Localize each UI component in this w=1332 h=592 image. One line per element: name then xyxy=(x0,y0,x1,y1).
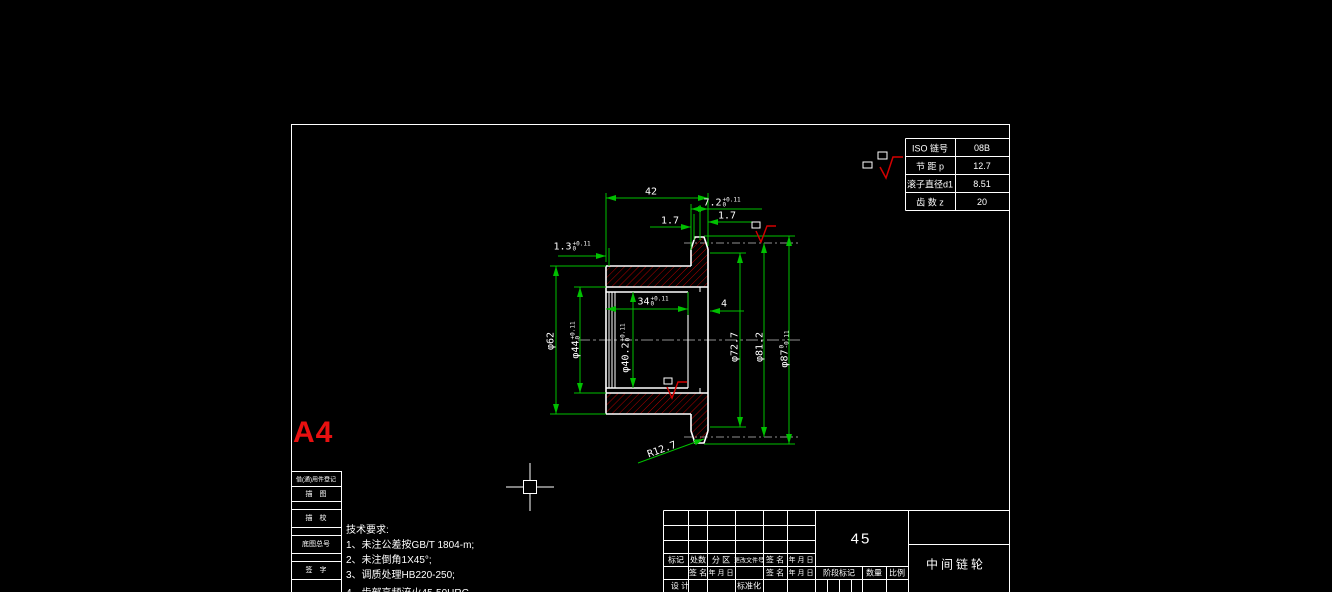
edge-field-trace: 描 图 xyxy=(306,489,327,499)
dim-text-dia62: φ62 xyxy=(546,332,557,350)
tb-sign3: 签 名 xyxy=(766,568,784,579)
tb-doc-no: 更改文件号 xyxy=(734,556,764,565)
edge-field-borrow: 借(通)用件登记 xyxy=(296,475,336,484)
dim-text-42: 42 xyxy=(645,187,657,198)
tech-req-item: 3、调质处理HB220-250; xyxy=(346,566,455,581)
tech-req-item: 4、齿部高频淬火45-50HRC xyxy=(346,584,469,592)
tech-req-item: 2、未注倒角1X45°; xyxy=(346,551,432,566)
param-value-teeth: 20 xyxy=(977,197,987,207)
param-label-iso: ISO 链号 xyxy=(912,142,948,155)
tech-req-item: 1、未注公差按GB/T 1804-m; xyxy=(346,536,474,551)
tb-design: 设 计 xyxy=(671,581,689,592)
tb-sign2: 签 名 xyxy=(689,568,707,579)
dim-text-dia72-7: φ72.7 xyxy=(730,332,741,362)
param-value-roller: 8.51 xyxy=(973,179,991,189)
param-label-pitch: 节 距 p xyxy=(916,160,944,173)
dim-text-7-2: 7.2+0.110 xyxy=(703,198,740,209)
dim-text-dia40-2: φ40.2+0.110 xyxy=(621,323,632,372)
tb-date2: 年 月 日 xyxy=(709,568,734,578)
param-value-pitch: 12.7 xyxy=(973,161,991,171)
dim-text-34: 34+0.110 xyxy=(637,297,668,308)
roughness-icon xyxy=(752,222,776,242)
tech-req-title: 技术要求: xyxy=(346,521,389,536)
edge-field-original-no: 底图总号 xyxy=(302,539,330,549)
sheet-format-label: A4 xyxy=(293,416,333,450)
dim-text-dia87: φ870-0.11 xyxy=(780,330,791,367)
dim-text-1-7b: 1.7 xyxy=(718,211,736,222)
roughness-icon xyxy=(863,152,903,178)
tb-mark: 标记 xyxy=(668,555,684,566)
dim-text-dia81-2: φ81.2 xyxy=(755,332,766,362)
dim-text-4: 4 xyxy=(721,299,727,310)
dim-text-1-7a: 1.7 xyxy=(661,216,679,227)
tb-count: 处数 xyxy=(690,555,706,566)
tb-qty: 数量 xyxy=(866,568,882,579)
cad-canvas[interactable]: A4 ISO 链号 08B 节 距 p 12.7 滚子直径d1 8.51 齿 数… xyxy=(0,0,1332,592)
dim-text-1-3: 1.3+0.110 xyxy=(553,242,590,253)
title-block-grid xyxy=(664,511,1010,592)
dim-text-dia44: φ44+0.110 xyxy=(571,321,582,358)
material-label: 45 xyxy=(851,531,872,548)
tb-date3: 年 月 日 xyxy=(789,568,814,578)
param-label-teeth: 齿 数 z xyxy=(916,196,944,209)
tb-stage: 阶段标记 xyxy=(823,568,855,579)
crosshair-cursor xyxy=(506,463,554,511)
edge-field-signature: 签 字 xyxy=(306,565,327,575)
tb-standard: 标准化 xyxy=(737,581,761,592)
tb-zone: 分 区 xyxy=(712,555,730,566)
tb-date: 年 月 日 xyxy=(789,555,814,565)
tb-sign: 签 名 xyxy=(766,555,784,566)
part-name: 中间链轮 xyxy=(926,556,986,573)
tb-scale: 比例 xyxy=(889,568,905,579)
param-label-roller: 滚子直径d1 xyxy=(907,178,953,191)
dimension-lines xyxy=(556,198,789,463)
edge-field-check: 描 校 xyxy=(306,513,327,523)
param-value-iso: 08B xyxy=(974,143,990,153)
